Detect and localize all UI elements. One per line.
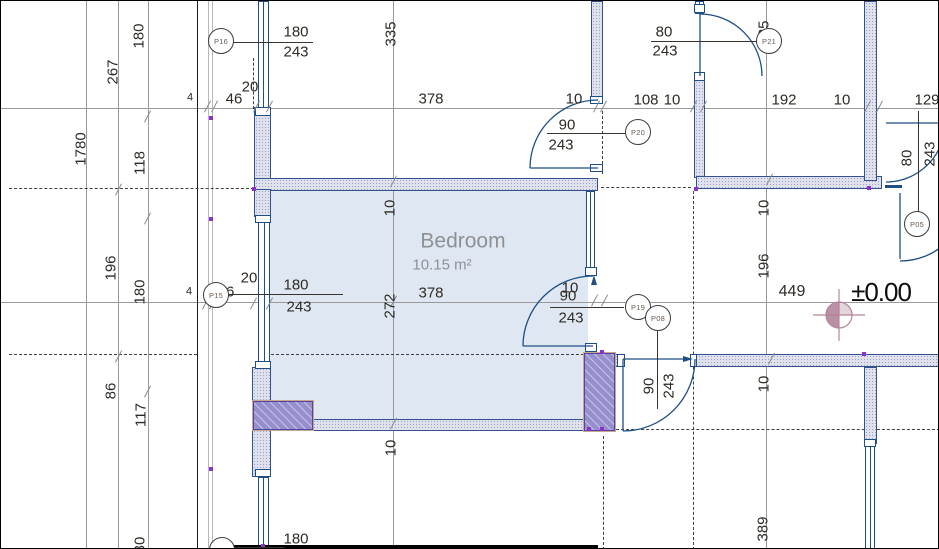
- reference-plane-horizontal: [271, 354, 594, 355]
- dim-label[interactable]: 90: [642, 378, 657, 395]
- wall[interactable]: [864, 367, 877, 444]
- dim-label[interactable]: 10: [757, 376, 772, 393]
- reference-plane-horizontal: [9, 354, 197, 355]
- door-tag-marker-p08[interactable]: P08: [645, 305, 671, 331]
- dim-label[interactable]: 449: [779, 284, 806, 300]
- door-tag-marker-p05[interactable]: P05: [904, 211, 930, 237]
- control-point-dot: [694, 187, 698, 191]
- dim-label[interactable]: 4: [186, 287, 192, 298]
- dim-label[interactable]: 243: [283, 45, 308, 60]
- control-point-dot: [252, 187, 256, 191]
- dim-label[interactable]: 20: [242, 80, 259, 95]
- wall[interactable]: [696, 176, 882, 189]
- grid-line-vertical: [86, 1, 87, 549]
- dim-label[interactable]: 180: [283, 278, 308, 293]
- dim-label[interactable]: 378: [418, 286, 443, 301]
- dim-label[interactable]: 243: [558, 311, 583, 326]
- reference-plane-horizontal: [601, 429, 939, 430]
- dim-label[interactable]: 86: [104, 383, 119, 400]
- window-frame-cap: [694, 4, 705, 13]
- floor-plan-canvas: 1802671780118196180861173033533520464378…: [0, 0, 939, 549]
- door-tag-marker-p15[interactable]: P15: [203, 282, 229, 308]
- dim-label[interactable]: 30: [133, 537, 148, 549]
- control-point-dot: [600, 350, 604, 354]
- dim-label[interactable]: 10: [383, 200, 398, 217]
- door-tag-marker-p16[interactable]: P16: [208, 28, 234, 54]
- dim-label[interactable]: 10: [566, 92, 583, 107]
- dimension-tick: [250, 298, 257, 310]
- door-swing-arrow: [591, 275, 597, 285]
- dim-label[interactable]: 129: [914, 93, 939, 108]
- dimension-tick: [876, 101, 883, 113]
- window-frame-cap: [255, 469, 271, 477]
- dim-label[interactable]: 108: [633, 93, 658, 108]
- wall[interactable]: [309, 419, 591, 431]
- dim-label[interactable]: 180: [133, 279, 148, 304]
- window-frame-cap: [585, 343, 597, 352]
- dim-label[interactable]: 180: [132, 23, 147, 48]
- wall[interactable]: [254, 189, 271, 217]
- control-point-dot: [600, 427, 604, 431]
- dim-label[interactable]: 80: [656, 25, 673, 40]
- reference-plane-vertical: [603, 436, 604, 549]
- dim-label[interactable]: 4: [187, 93, 193, 104]
- dim-label[interactable]: 20: [241, 271, 258, 286]
- window[interactable]: [865, 444, 875, 549]
- door-p21[interactable]: [700, 14, 762, 76]
- tag-leader-line: [216, 294, 343, 295]
- dimension-tick: [591, 295, 598, 307]
- room-area-label[interactable]: 10.15 m²: [412, 258, 471, 273]
- section-line-vertical: [197, 1, 198, 549]
- window-frame-cap: [864, 439, 876, 447]
- door-p20[interactable]: [530, 100, 598, 168]
- door-p08[interactable]: [623, 359, 695, 431]
- room-name-label[interactable]: Bedroom: [420, 231, 505, 252]
- grid-line-vertical: [148, 1, 149, 549]
- control-point-dot: [587, 427, 591, 431]
- dimension-tick: [601, 295, 608, 307]
- window[interactable]: [258, 1, 269, 109]
- wall[interactable]: [694, 354, 939, 367]
- door-tag-marker-p21[interactable]: P21: [756, 28, 782, 54]
- control-point-dot: [867, 186, 871, 190]
- dim-label[interactable]: 10: [664, 93, 681, 108]
- control-point-dot: [209, 467, 213, 471]
- level-annotation[interactable]: ±0.00: [851, 279, 911, 305]
- control-point-dot: [862, 352, 866, 356]
- dim-label[interactable]: 46: [226, 92, 243, 107]
- wall[interactable]: [252, 367, 271, 404]
- dim-label[interactable]: 196: [757, 253, 772, 278]
- dim-label[interactable]: 117: [134, 403, 149, 427]
- dim-label[interactable]: 180: [283, 25, 308, 40]
- dim-label[interactable]: 1780: [74, 132, 89, 165]
- window-frame-cap: [590, 164, 603, 172]
- wall[interactable]: [254, 178, 598, 191]
- wall[interactable]: [591, 1, 603, 98]
- dim-label[interactable]: 335: [384, 21, 399, 46]
- dim-label[interactable]: 243: [286, 300, 311, 315]
- wall[interactable]: [254, 107, 271, 181]
- reference-plane-vertical: [693, 191, 694, 549]
- dim-label[interactable]: 389: [756, 516, 771, 541]
- dim-label[interactable]: 196: [104, 255, 119, 280]
- dim-label[interactable]: 80: [900, 150, 915, 167]
- dim-label[interactable]: 10: [757, 200, 772, 217]
- door-sill: [885, 185, 902, 188]
- dim-label[interactable]: 243: [662, 373, 677, 398]
- window-frame-cap: [255, 215, 271, 223]
- window[interactable]: [258, 477, 269, 549]
- window-frame-cap: [617, 354, 625, 367]
- wall[interactable]: [864, 1, 877, 181]
- tag-leader-line: [657, 328, 658, 409]
- door-tag-marker-p20[interactable]: P20: [625, 119, 651, 145]
- grid-line-horizontal: [1, 108, 939, 109]
- room-bedroom-floor[interactable]: [269, 191, 588, 419]
- grid-line-vertical: [393, 1, 394, 549]
- dim-label[interactable]: 243: [652, 44, 677, 59]
- tag-leader-line: [550, 307, 624, 308]
- window[interactable]: [586, 191, 595, 271]
- dim-label[interactable]: 243: [923, 141, 938, 166]
- dim-label[interactable]: 90: [559, 118, 576, 133]
- window-frame-cap: [694, 72, 705, 81]
- dim-label[interactable]: 378: [418, 92, 443, 107]
- control-point-dot: [209, 116, 213, 120]
- dim-label[interactable]: 10: [834, 93, 851, 108]
- tag-leader-line: [918, 111, 919, 213]
- reference-plane-horizontal: [601, 187, 691, 188]
- dim-label[interactable]: 272: [383, 293, 398, 318]
- wall[interactable]: [694, 77, 705, 178]
- window-frame-cap: [585, 267, 597, 276]
- control-point-dot: [209, 217, 213, 221]
- dim-label[interactable]: 118: [133, 151, 148, 175]
- dim-label[interactable]: 180: [283, 532, 308, 547]
- reference-plane-horizontal: [9, 188, 254, 189]
- dim-label[interactable]: 90: [560, 289, 577, 304]
- tag-leader-line: [234, 547, 285, 548]
- dim-label[interactable]: 243: [548, 138, 573, 153]
- column[interactable]: [584, 353, 615, 431]
- window-frame-cap: [690, 354, 697, 367]
- dim-label[interactable]: 267: [106, 59, 121, 84]
- dim-label[interactable]: 192: [771, 93, 796, 108]
- dim-label[interactable]: 10: [384, 440, 399, 457]
- window-frame-cap: [255, 361, 271, 369]
- column[interactable]: [253, 401, 313, 430]
